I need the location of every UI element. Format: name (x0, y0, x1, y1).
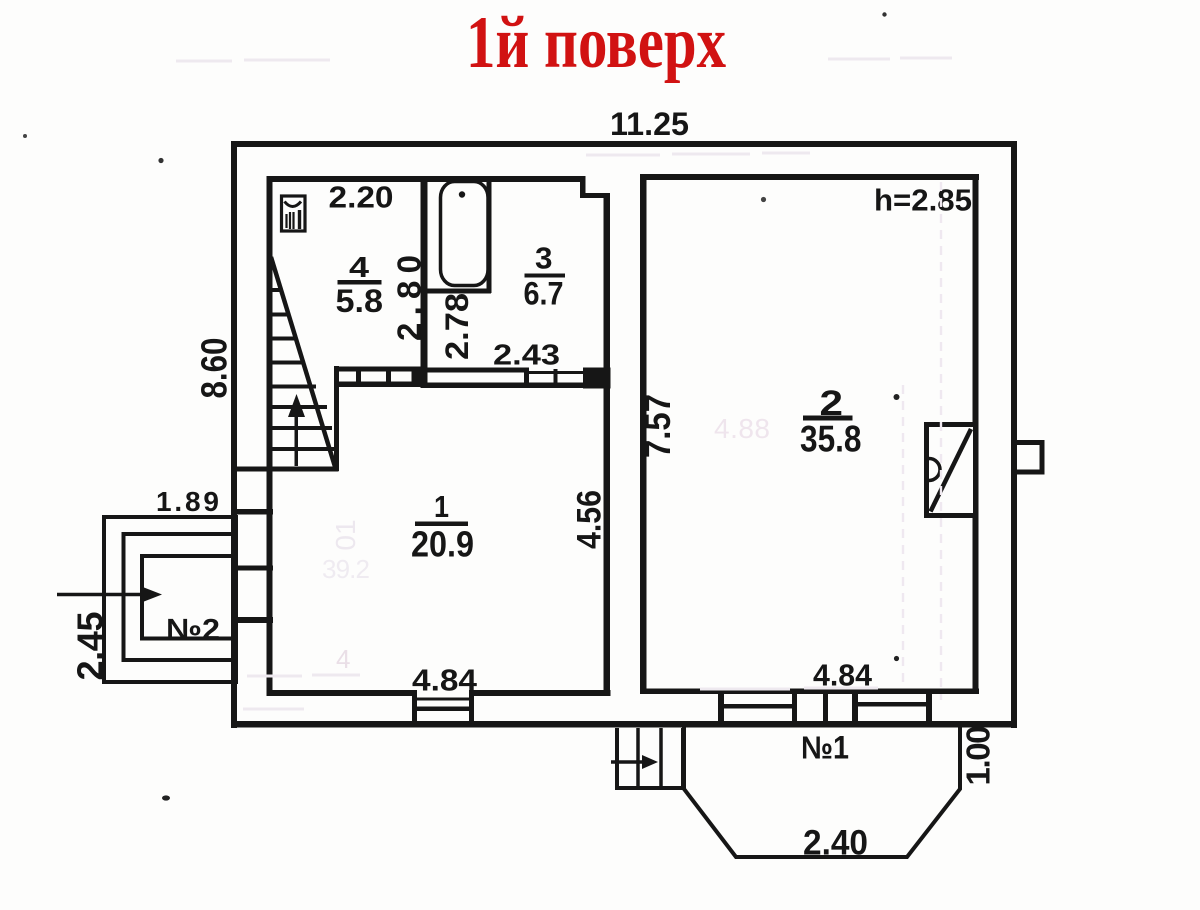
svg-text:5.8: 5.8 (336, 283, 384, 319)
svg-text:№1: №1 (801, 730, 849, 766)
svg-text:39.2: 39.2 (322, 554, 370, 584)
svg-text:h=2.85: h=2.85 (874, 183, 972, 218)
svg-text:4.56: 4.56 (571, 490, 609, 549)
svg-text:8.60: 8.60 (194, 338, 235, 399)
svg-text:1й поверх: 1й поверх (466, 2, 726, 84)
svg-text:№2: №2 (166, 614, 220, 647)
svg-text:11.25: 11.25 (610, 106, 689, 142)
svg-text:1.89: 1.89 (156, 486, 219, 517)
svg-text:1: 1 (434, 489, 449, 524)
svg-text:4: 4 (336, 644, 350, 674)
svg-text:7.57: 7.57 (637, 394, 678, 458)
svg-text:2.40: 2.40 (803, 824, 868, 863)
svg-text:35.8: 35.8 (800, 419, 862, 460)
svg-text:2.78: 2.78 (439, 293, 475, 360)
svg-text:4: 4 (349, 252, 369, 284)
svg-text:2.43: 2.43 (493, 340, 560, 372)
svg-text:20.9: 20.9 (411, 524, 474, 565)
svg-text:01: 01 (330, 519, 361, 550)
svg-text:1.00: 1.00 (960, 726, 997, 786)
svg-text:3: 3 (535, 241, 553, 276)
svg-text:4.84: 4.84 (412, 663, 478, 698)
svg-text:4.88: 4.88 (714, 413, 770, 444)
svg-text:2.45: 2.45 (70, 612, 111, 681)
svg-text:2.20: 2.20 (329, 180, 394, 215)
svg-text:6.7: 6.7 (524, 276, 564, 312)
svg-text:2.80: 2.80 (391, 255, 428, 341)
